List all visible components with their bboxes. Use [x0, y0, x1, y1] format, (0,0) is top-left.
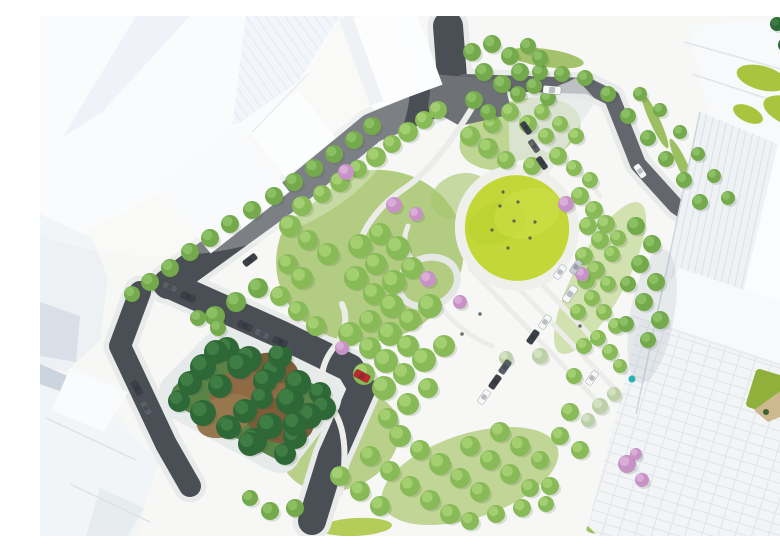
- tree-highlight: [170, 392, 182, 404]
- tree-highlight: [365, 285, 377, 297]
- tree-highlight: [250, 280, 261, 291]
- tree-highlight: [465, 44, 475, 54]
- tree-highlight: [336, 342, 344, 350]
- tree-highlight: [608, 388, 616, 396]
- tree-highlight: [245, 202, 255, 212]
- tree-highlight: [417, 112, 427, 122]
- tree-highlight: [641, 131, 650, 140]
- tree-highlight: [603, 345, 612, 354]
- tree-highlight: [307, 160, 317, 170]
- tree-highlight: [591, 331, 600, 340]
- tree-highlight: [347, 132, 357, 142]
- tree-highlight: [581, 218, 591, 228]
- tree-highlight: [210, 376, 223, 389]
- tree-highlight: [503, 48, 513, 58]
- tree-highlight: [472, 484, 483, 495]
- tree-highlight: [492, 424, 503, 435]
- tree-highlight: [385, 136, 395, 146]
- tree-highlight: [463, 513, 473, 523]
- tree-highlight: [621, 109, 630, 118]
- tree-highlight: [203, 230, 213, 240]
- tree-highlight: [609, 319, 618, 328]
- tree-highlight: [400, 124, 411, 135]
- tree-highlight: [229, 355, 243, 369]
- tree-highlight: [431, 455, 443, 467]
- tree-highlight: [637, 294, 647, 304]
- tree-highlight: [708, 170, 716, 178]
- tree-highlight: [399, 395, 411, 407]
- tree-highlight: [228, 294, 239, 305]
- tree-highlight: [281, 217, 293, 229]
- tree-highlight: [641, 333, 650, 342]
- tree-highlight: [525, 158, 535, 168]
- tree-highlight: [192, 356, 206, 370]
- tree-highlight: [272, 288, 283, 299]
- tree-highlight: [327, 146, 337, 156]
- tree-highlight: [365, 118, 375, 128]
- detail-dot: [530, 142, 534, 146]
- tree-highlight: [287, 372, 301, 386]
- tree-highlight: [573, 442, 583, 452]
- tree-highlight: [495, 76, 505, 86]
- tree-highlight: [287, 174, 297, 184]
- tree-highlight: [587, 202, 597, 212]
- tree-highlight: [512, 438, 523, 449]
- tree-highlight: [633, 256, 643, 266]
- tree-highlight: [372, 498, 383, 509]
- tree-highlight: [399, 337, 411, 349]
- tree-highlight: [693, 195, 702, 204]
- tree-highlight: [692, 148, 700, 156]
- tree-highlight: [553, 117, 562, 126]
- tree-highlight: [340, 324, 353, 337]
- tree-highlight: [578, 71, 587, 80]
- tree-highlight: [288, 500, 298, 510]
- tree-highlight: [207, 308, 218, 319]
- tree-highlight: [368, 149, 379, 160]
- person-dot: [506, 246, 509, 249]
- tree-highlight: [599, 216, 609, 226]
- person-dot: [512, 219, 515, 222]
- tree-highlight: [367, 255, 379, 267]
- tree-highlight: [577, 339, 586, 348]
- tree-highlight: [403, 259, 415, 271]
- tree-highlight: [645, 236, 655, 246]
- tree-highlight: [583, 173, 592, 182]
- tree-highlight: [352, 483, 363, 494]
- person-dot: [501, 190, 504, 193]
- tree-highlight: [500, 352, 508, 360]
- tree-highlight: [143, 274, 153, 284]
- tree-highlight: [263, 503, 273, 513]
- person-dot: [498, 204, 501, 207]
- tree-highlight: [533, 349, 542, 358]
- tree-highlight: [240, 434, 253, 447]
- person-dot: [490, 228, 493, 231]
- tree-highlight: [589, 262, 599, 272]
- detail-dot: [478, 312, 482, 316]
- tree-highlight: [206, 342, 219, 355]
- tree-highlight: [270, 346, 283, 359]
- tree-highlight: [523, 480, 533, 490]
- tree-highlight: [308, 318, 319, 329]
- tree-highlight: [499, 152, 509, 162]
- tree-highlight: [649, 274, 659, 284]
- tree-highlight: [621, 277, 630, 286]
- tree-highlight: [502, 466, 513, 477]
- tree-highlight: [223, 216, 233, 226]
- tree-highlight: [467, 92, 477, 102]
- tree-highlight: [183, 244, 193, 254]
- tree-highlight: [771, 18, 779, 26]
- tree-highlight: [577, 248, 587, 258]
- tree-highlight: [290, 303, 301, 314]
- car: [543, 85, 562, 95]
- tree-highlight: [350, 236, 363, 249]
- tree-highlight: [674, 126, 682, 134]
- tree-highlight: [559, 197, 568, 206]
- tree-highlight: [527, 79, 536, 88]
- detail-dot: [629, 376, 636, 383]
- tree-highlight: [280, 256, 291, 267]
- tree-highlight: [180, 373, 193, 386]
- tree-highlight: [533, 452, 543, 462]
- tree-highlight: [267, 188, 277, 198]
- tree-highlight: [259, 415, 273, 429]
- tree-highlight: [410, 208, 418, 216]
- tree-highlight: [315, 186, 325, 196]
- tree-highlight: [567, 161, 576, 170]
- person-dot: [533, 220, 536, 223]
- tree-highlight: [551, 148, 561, 158]
- tree-highlight: [311, 384, 323, 396]
- roof-tree: [763, 409, 769, 415]
- tree-highlight: [421, 272, 430, 281]
- tree-highlight: [452, 470, 463, 481]
- tree-highlight: [431, 102, 441, 112]
- tree-highlight: [585, 291, 594, 300]
- tree-highlight: [611, 231, 620, 240]
- tree-highlight: [371, 225, 383, 237]
- tree-highlight: [601, 277, 610, 286]
- tree-highlight: [533, 51, 542, 60]
- tree-highlight: [293, 269, 305, 281]
- tree-highlight: [339, 165, 348, 174]
- tree-highlight: [255, 371, 268, 384]
- detail-dot: [460, 332, 464, 336]
- tree-highlight: [278, 389, 293, 404]
- tree-highlight: [414, 350, 427, 363]
- tree-highlight: [243, 491, 252, 500]
- tree-highlight: [362, 448, 373, 459]
- tree-highlight: [285, 414, 298, 427]
- tree-highlight: [482, 452, 493, 463]
- tree-highlight: [454, 296, 462, 304]
- tree-highlight: [489, 506, 499, 516]
- tree-highlight: [513, 64, 523, 74]
- tree-highlight: [435, 337, 447, 349]
- tree-highlight: [634, 88, 642, 96]
- tree-highlight: [387, 198, 396, 207]
- tree-highlight: [511, 87, 520, 96]
- tree-highlight: [374, 378, 387, 391]
- aerial-park-rendering: [40, 16, 780, 536]
- tree-highlight: [629, 218, 639, 228]
- tree-highlight: [480, 140, 491, 151]
- tree-highlight: [211, 321, 220, 330]
- tree-highlight: [412, 442, 423, 453]
- tree-highlight: [276, 445, 288, 457]
- tree-highlight: [380, 410, 391, 421]
- tree-highlight: [722, 192, 730, 200]
- tree-highlight: [300, 232, 311, 243]
- tree-highlight: [462, 128, 473, 139]
- tree-highlight: [401, 311, 413, 323]
- tree-highlight: [294, 198, 305, 209]
- tree-highlight: [593, 399, 602, 408]
- tree-highlight: [654, 104, 662, 112]
- tree-highlight: [521, 39, 530, 48]
- tree-highlight: [481, 105, 490, 114]
- tree-highlight: [653, 312, 663, 322]
- tree-highlight: [361, 339, 373, 351]
- tree-highlight: [605, 247, 614, 256]
- tree-highlight: [555, 67, 564, 76]
- tree-highlight: [553, 428, 563, 438]
- car-windshield: [549, 87, 556, 94]
- tree-highlight: [402, 478, 413, 489]
- tree-highlight: [619, 317, 628, 326]
- tree-highlight: [319, 245, 331, 257]
- tree-highlight: [503, 104, 513, 114]
- tree-highlight: [163, 260, 173, 270]
- tree-highlight: [420, 380, 431, 391]
- tree-highlight: [253, 389, 265, 401]
- tree-highlight: [631, 449, 638, 456]
- tree-highlight: [539, 497, 548, 506]
- detail-dot: [578, 324, 582, 328]
- tree-highlight: [388, 238, 401, 251]
- tree-highlight: [573, 188, 583, 198]
- tree-highlight: [597, 305, 606, 314]
- tree-highlight: [235, 401, 248, 414]
- tree-highlight: [535, 105, 544, 114]
- tree-highlight: [382, 463, 393, 474]
- tree-highlight: [376, 351, 389, 364]
- tree-highlight: [477, 64, 487, 74]
- tree-highlight: [543, 478, 553, 488]
- tree-highlight: [191, 311, 200, 320]
- tree-highlight: [567, 369, 576, 378]
- tree-highlight: [462, 438, 473, 449]
- tree-highlight: [593, 232, 603, 242]
- tree-highlight: [677, 173, 686, 182]
- tree-highlight: [442, 506, 453, 517]
- tree-highlight: [515, 500, 525, 510]
- tree-highlight: [539, 129, 548, 138]
- tree-highlight: [384, 272, 397, 285]
- tree-highlight: [485, 36, 495, 46]
- tree-highlight: [125, 287, 134, 296]
- tree-highlight: [420, 296, 433, 309]
- tree-highlight: [601, 87, 610, 96]
- rendering-canvas: [40, 16, 780, 536]
- tree-highlight: [380, 324, 393, 337]
- tree-highlight: [192, 402, 206, 416]
- tree-highlight: [571, 305, 580, 314]
- person-dot: [528, 236, 531, 239]
- person-dot: [516, 200, 519, 203]
- tree-highlight: [614, 360, 622, 368]
- tree-highlight: [395, 365, 407, 377]
- tree-highlight: [346, 268, 359, 281]
- tree-highlight: [620, 456, 630, 466]
- tree-highlight: [221, 419, 233, 431]
- tree-highlight: [361, 312, 373, 324]
- tree-highlight: [659, 152, 668, 161]
- tree-highlight: [332, 468, 343, 479]
- tree-highlight: [582, 414, 590, 422]
- tree-highlight: [382, 296, 395, 309]
- tree-highlight: [569, 129, 578, 138]
- tree-highlight: [391, 427, 403, 439]
- tree-highlight: [563, 404, 573, 414]
- tree-highlight: [636, 474, 644, 482]
- tree-highlight: [422, 492, 433, 503]
